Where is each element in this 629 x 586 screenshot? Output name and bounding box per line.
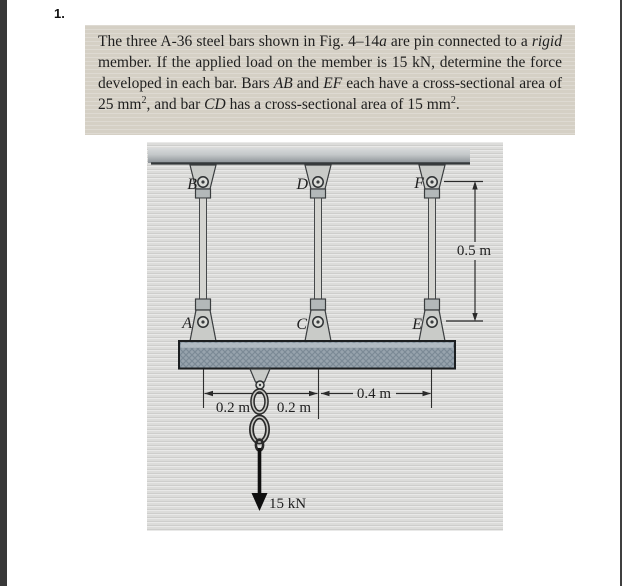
statement-text: The three A-36 steel bars shown in Fig. … [98,33,379,50]
bar-ab-italic: AB [274,75,293,92]
figure-drawing: B D F A C E 0.2 m 0.2 m 0.4 m 0.5 m 15 k… [147,142,503,531]
statement-text: , and bar [147,96,205,113]
pin-label-c: C [296,316,307,333]
dim-label-02m-left: 0.2 m [216,400,251,416]
fig-ref-italic: a [379,33,387,50]
page-left-border [0,0,7,586]
pin-label-d: D [295,176,308,193]
statement-text: . [456,96,460,113]
ceiling [148,148,470,163]
problem-statement: The three A-36 steel bars shown in Fig. … [85,25,575,135]
page-right-border [620,0,622,586]
bar-cd-italic: CD [204,96,226,113]
dimension-line-bottom [205,391,432,396]
pin-label-b: B [187,176,197,193]
load-arrow [252,448,268,511]
statement-text: has a cross-sectional area of 15 mm [226,96,451,113]
rigid-italic: rigid [532,33,562,50]
pin-label-e: E [411,316,422,333]
dim-label-02m-right: 0.2 m [277,400,312,416]
pin-label-f: F [413,175,424,192]
bar-cd [305,165,331,341]
bar-ef-italic: EF [323,75,342,92]
dim-label-04m: 0.4 m [357,386,392,402]
problem-number: 1. [54,6,65,21]
textbook-page: 1. The three A-36 steel bars shown in Fi… [0,0,629,586]
statement-text: are pin connected to a [387,33,532,50]
load-label: 15 kN [269,496,306,512]
figure-4-14a: B D F A C E 0.2 m 0.2 m 0.4 m 0.5 m 15 k… [147,142,503,531]
rigid-member [179,341,455,369]
pin-label-a: A [181,315,192,332]
dim-label-05m: 0.5 m [457,243,492,259]
load-chain [250,369,270,451]
statement-text: and [293,75,324,92]
